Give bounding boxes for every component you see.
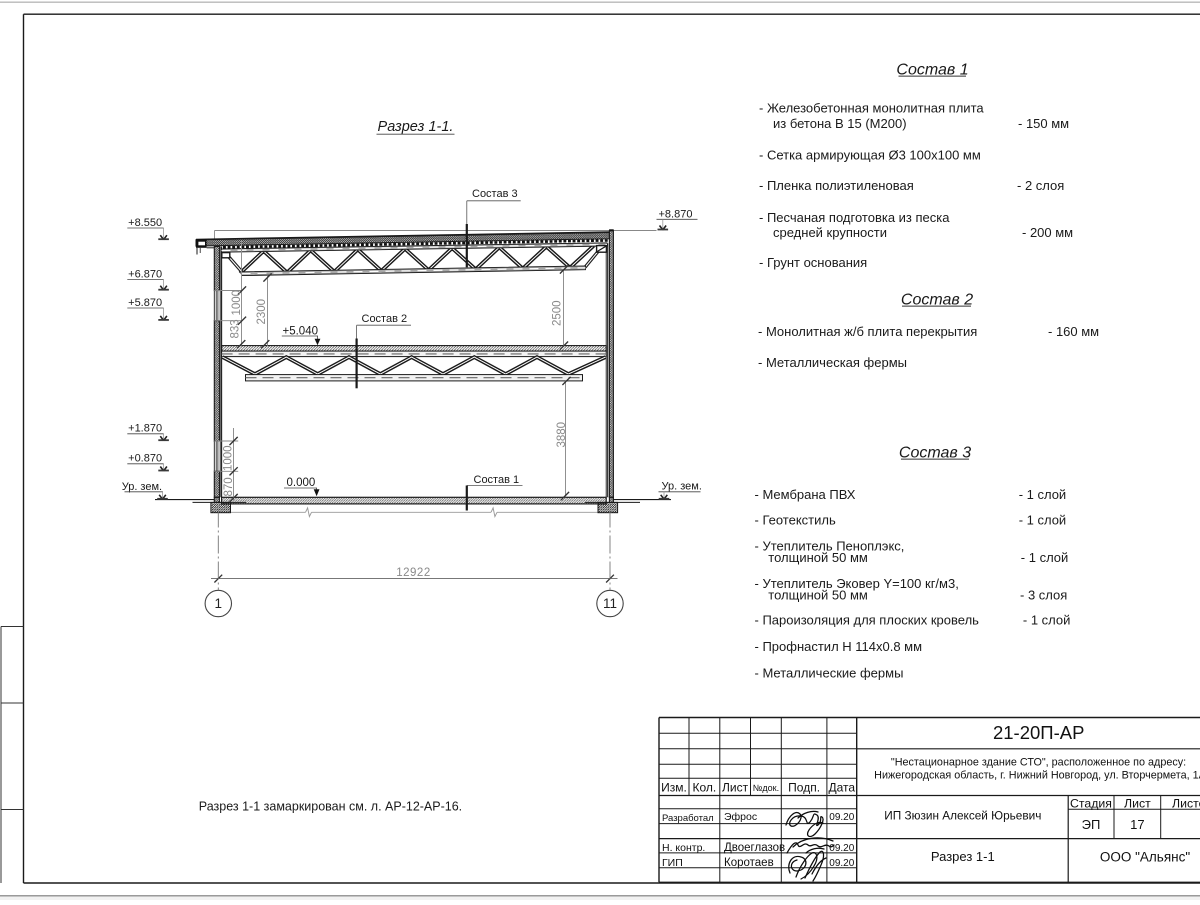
svg-text:Листов: Листов xyxy=(1172,797,1200,811)
svg-text:толщиной 50 мм: толщиной 50 мм xyxy=(768,588,868,603)
svg-text:толщиной 50 мм: толщиной 50 мм xyxy=(768,550,868,565)
svg-text:Ур. зем.: Ур. зем. xyxy=(122,481,162,493)
svg-text:Кол.: Кол. xyxy=(693,781,717,795)
svg-text:- 2 слоя: - 2 слоя xyxy=(1017,178,1064,193)
svg-text:- 1 слой: - 1 слой xyxy=(1021,550,1069,565)
svg-text:- 1 слой: - 1 слой xyxy=(1019,513,1067,528)
svg-text:"Нестационарное здание СТО", р: "Нестационарное здание СТО", расположенн… xyxy=(891,756,1186,768)
svg-text:Двоеглазов: Двоеглазов xyxy=(724,842,785,854)
svg-text:- Железобетонная монолитная п: - Железобетонная монолитная плита xyxy=(759,101,984,116)
svg-text:Ур. зем.: Ур. зем. xyxy=(662,481,702,493)
svg-text:- Металлические фермы: - Металлические фермы xyxy=(755,666,904,681)
svg-text:- Пленка полиэтиленовая: - Пленка полиэтиленовая xyxy=(759,178,914,193)
svg-text:Состав 1: Состав 1 xyxy=(474,474,520,486)
svg-text:+5.040: +5.040 xyxy=(283,325,319,337)
svg-text:833: 833 xyxy=(230,319,242,338)
svg-text:11: 11 xyxy=(603,596,617,611)
svg-text:Разрез 1-1.: Разрез 1-1. xyxy=(378,119,454,135)
svg-text:Лист: Лист xyxy=(722,781,749,795)
svg-text:ГИП: ГИП xyxy=(662,857,683,869)
svg-text:Состав 2: Состав 2 xyxy=(362,313,408,325)
svg-text:Разрез 1-1 замаркирован см. л.: Разрез 1-1 замаркирован см. л. АР-12-АР-… xyxy=(199,800,462,814)
svg-text:Н. контр.: Н. контр. xyxy=(662,842,705,854)
svg-text:Разрез 1-1: Разрез 1-1 xyxy=(931,849,995,864)
svg-text:+8.870: +8.870 xyxy=(659,208,693,220)
svg-text:09.20: 09.20 xyxy=(829,843,854,854)
svg-text:из бетона В 15 (М200): из бетона В 15 (М200) xyxy=(773,116,907,131)
svg-text:ООО "Альянс": ООО "Альянс" xyxy=(1100,850,1190,865)
svg-text:+8.550: +8.550 xyxy=(128,217,162,229)
svg-text:- 160 мм: - 160 мм xyxy=(1048,324,1099,339)
svg-text:2500: 2500 xyxy=(552,300,564,326)
svg-text:Коротаев: Коротаев xyxy=(724,857,774,869)
svg-text:- 3 слоя: - 3 слоя xyxy=(1020,588,1067,603)
svg-text:- Геотекстиль: - Геотекстиль xyxy=(755,513,836,528)
svg-text:870: 870 xyxy=(223,477,235,496)
svg-text:Лист: Лист xyxy=(1124,797,1151,811)
svg-text:Разработал: Разработал xyxy=(662,813,714,824)
svg-text:- Сетка армирующая Ø3 100х100: - Сетка армирующая Ø3 100х100 мм xyxy=(759,148,981,163)
svg-text:- 200 мм: - 200 мм xyxy=(1022,225,1073,240)
svg-text:- Металлическая фермы: - Металлическая фермы xyxy=(758,355,907,370)
svg-text:17: 17 xyxy=(1130,817,1144,832)
svg-text:Эфрос: Эфрос xyxy=(724,811,757,823)
svg-text:- Монолитная ж/б плита перекры: - Монолитная ж/б плита перекрытия xyxy=(758,324,977,339)
svg-text:- Пароизоляция для плоских кро: - Пароизоляция для плоских кровель xyxy=(755,613,980,628)
svg-text:- Грунт основания: - Грунт основания xyxy=(759,255,867,270)
svg-text:1: 1 xyxy=(215,596,223,611)
svg-text:2300: 2300 xyxy=(256,299,268,325)
svg-text:№док.: №док. xyxy=(753,783,779,793)
svg-text:- Песчаная подготовка из песка: - Песчаная подготовка из песка xyxy=(759,210,950,225)
svg-text:Нижегородская область, г. Нижн: Нижегородская область, г. Нижний Новгоро… xyxy=(874,770,1200,782)
svg-text:21-20П-АР: 21-20П-АР xyxy=(993,722,1084,743)
svg-text:Изм.: Изм. xyxy=(661,781,687,795)
svg-text:12922: 12922 xyxy=(396,567,430,579)
svg-text:0.000: 0.000 xyxy=(287,477,316,489)
svg-text:3880: 3880 xyxy=(556,422,568,448)
svg-text:- 1 слой: - 1 слой xyxy=(1019,487,1067,502)
svg-text:1000: 1000 xyxy=(222,445,234,471)
svg-text:- Мембрана ПВХ: - Мембрана ПВХ xyxy=(755,487,856,502)
svg-text:09.20: 09.20 xyxy=(829,812,854,823)
svg-text:Стадия: Стадия xyxy=(1070,797,1112,811)
svg-text:средней крупности: средней крупности xyxy=(773,225,887,240)
svg-text:+6.870: +6.870 xyxy=(128,268,162,280)
svg-text:+0.870: +0.870 xyxy=(128,453,162,465)
svg-text:Состав 3: Состав 3 xyxy=(472,188,518,200)
svg-text:09.20: 09.20 xyxy=(829,858,854,869)
svg-text:- Профнастил Н 114х0.8 мм: - Профнастил Н 114х0.8 мм xyxy=(755,639,923,654)
svg-text:+1.870: +1.870 xyxy=(128,423,162,435)
svg-text:+5.870: +5.870 xyxy=(128,297,162,309)
svg-text:- 1 слой: - 1 слой xyxy=(1023,613,1071,628)
svg-text:ЭП: ЭП xyxy=(1082,817,1101,832)
svg-text:Дата: Дата xyxy=(829,781,856,795)
svg-text:- 150 мм: - 150 мм xyxy=(1018,116,1069,131)
svg-text:1000: 1000 xyxy=(231,290,243,316)
svg-text:ИП Зюзин Алексей Юрьевич: ИП Зюзин Алексей Юрьевич xyxy=(884,809,1041,823)
svg-text:Подп.: Подп. xyxy=(788,781,820,795)
